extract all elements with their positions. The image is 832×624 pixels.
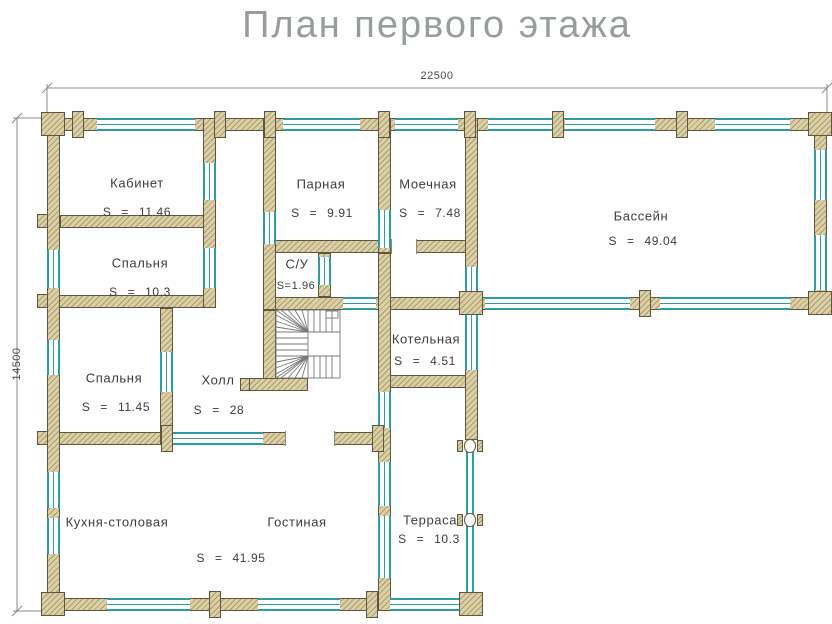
- window: [378, 462, 391, 506]
- window: [97, 118, 195, 131]
- dimension-width-label: 22500: [420, 70, 453, 82]
- room-area-terrasa: S = 10.3: [398, 532, 460, 546]
- terrace-post-base: [457, 440, 463, 452]
- log-end: [366, 591, 378, 618]
- door-opening: [318, 257, 331, 285]
- log-end: [464, 111, 476, 138]
- room-area-spalnya-1: S = 10.3: [109, 285, 171, 299]
- window: [485, 297, 630, 310]
- corner-post: [41, 592, 65, 616]
- log-end: [161, 425, 173, 452]
- window: [715, 118, 790, 131]
- log-end: [240, 378, 250, 391]
- door-opening: [263, 212, 276, 244]
- room-area-bassein: S = 49.04: [608, 234, 677, 248]
- room-label-kabinet: Кабинет: [110, 176, 164, 191]
- room-area-gostinaya: S = 41.95: [196, 551, 265, 565]
- window: [395, 118, 458, 131]
- window: [390, 598, 460, 611]
- window: [47, 340, 60, 375]
- log-end: [214, 111, 226, 138]
- terrace-post-base: [477, 440, 483, 452]
- terrace-post-base: [477, 514, 483, 526]
- window: [814, 235, 827, 290]
- log-end: [378, 111, 390, 138]
- corner-post: [808, 112, 832, 136]
- room-area-moechnaya: S = 7.48: [399, 206, 461, 220]
- window: [258, 598, 340, 611]
- room-label-terrasa: Терраса: [403, 513, 457, 528]
- room-area-kabinet: S = 11.46: [103, 205, 171, 219]
- dimension-and-stairs-drawing: [0, 0, 832, 624]
- log-end: [372, 425, 384, 452]
- window: [814, 150, 827, 200]
- room-label-parnaya: Парная: [297, 177, 346, 192]
- corner-post: [459, 291, 483, 315]
- window: [107, 598, 190, 611]
- room-label-holl: Холл: [201, 373, 234, 388]
- staircase: [276, 310, 340, 378]
- door-opening: [378, 392, 391, 428]
- window: [47, 472, 60, 508]
- door-opening: [378, 210, 391, 248]
- corner-post: [459, 592, 483, 616]
- room-area-kotelnaya: S = 4.51: [394, 354, 456, 368]
- log-end: [37, 214, 48, 228]
- room-label-moechnaya: Моечная: [399, 177, 456, 192]
- room-area-spalnya-2: S = 11.45: [82, 400, 150, 414]
- corner-post: [808, 291, 832, 315]
- terrace-post-base: [457, 514, 463, 526]
- door-opening: [343, 297, 376, 310]
- terrace-post: [457, 512, 483, 527]
- window: [283, 118, 360, 131]
- window: [47, 250, 60, 288]
- log-end: [72, 111, 84, 138]
- room-label-kuhnya: Кухня-столовая: [66, 515, 169, 530]
- terrace-column-icon: [464, 513, 477, 527]
- window: [660, 297, 790, 310]
- window: [173, 432, 263, 445]
- room-area-parnaya: S = 9.91: [291, 206, 353, 220]
- room-label-gostinaya: Гостиная: [267, 515, 326, 530]
- door-opening: [391, 239, 417, 254]
- room-label-kotelnaya: Котельная: [392, 332, 460, 347]
- door-opening: [203, 163, 216, 200]
- floor-plan-canvas: План первого этажа 22500 14500: [0, 0, 832, 624]
- terrace-column-icon: [464, 439, 477, 453]
- room-label-spalnya-1: Спальня: [112, 256, 168, 271]
- log-end: [37, 431, 48, 445]
- window: [565, 118, 655, 131]
- terrace-post: [457, 438, 483, 453]
- corner-post: [41, 112, 65, 136]
- door-opening: [160, 352, 173, 392]
- room-label-spalnya-2: Спальня: [86, 371, 142, 386]
- room-area-holl: S = 28: [194, 403, 245, 417]
- window: [465, 315, 478, 370]
- log-end: [552, 111, 564, 138]
- window: [488, 118, 552, 131]
- room-label-bassein: Бассейн: [614, 209, 669, 224]
- window: [378, 516, 391, 578]
- log-end: [209, 591, 221, 618]
- door-opening: [203, 248, 216, 288]
- dimension-height-label: 14500: [11, 334, 23, 394]
- log-end: [676, 111, 688, 138]
- room-area-su: S=1.96: [277, 280, 316, 292]
- log-end: [639, 290, 651, 317]
- log-end: [37, 294, 48, 308]
- log-end: [264, 111, 276, 138]
- door-opening: [285, 431, 335, 446]
- room-label-su: С/У: [285, 257, 308, 272]
- window: [47, 518, 60, 554]
